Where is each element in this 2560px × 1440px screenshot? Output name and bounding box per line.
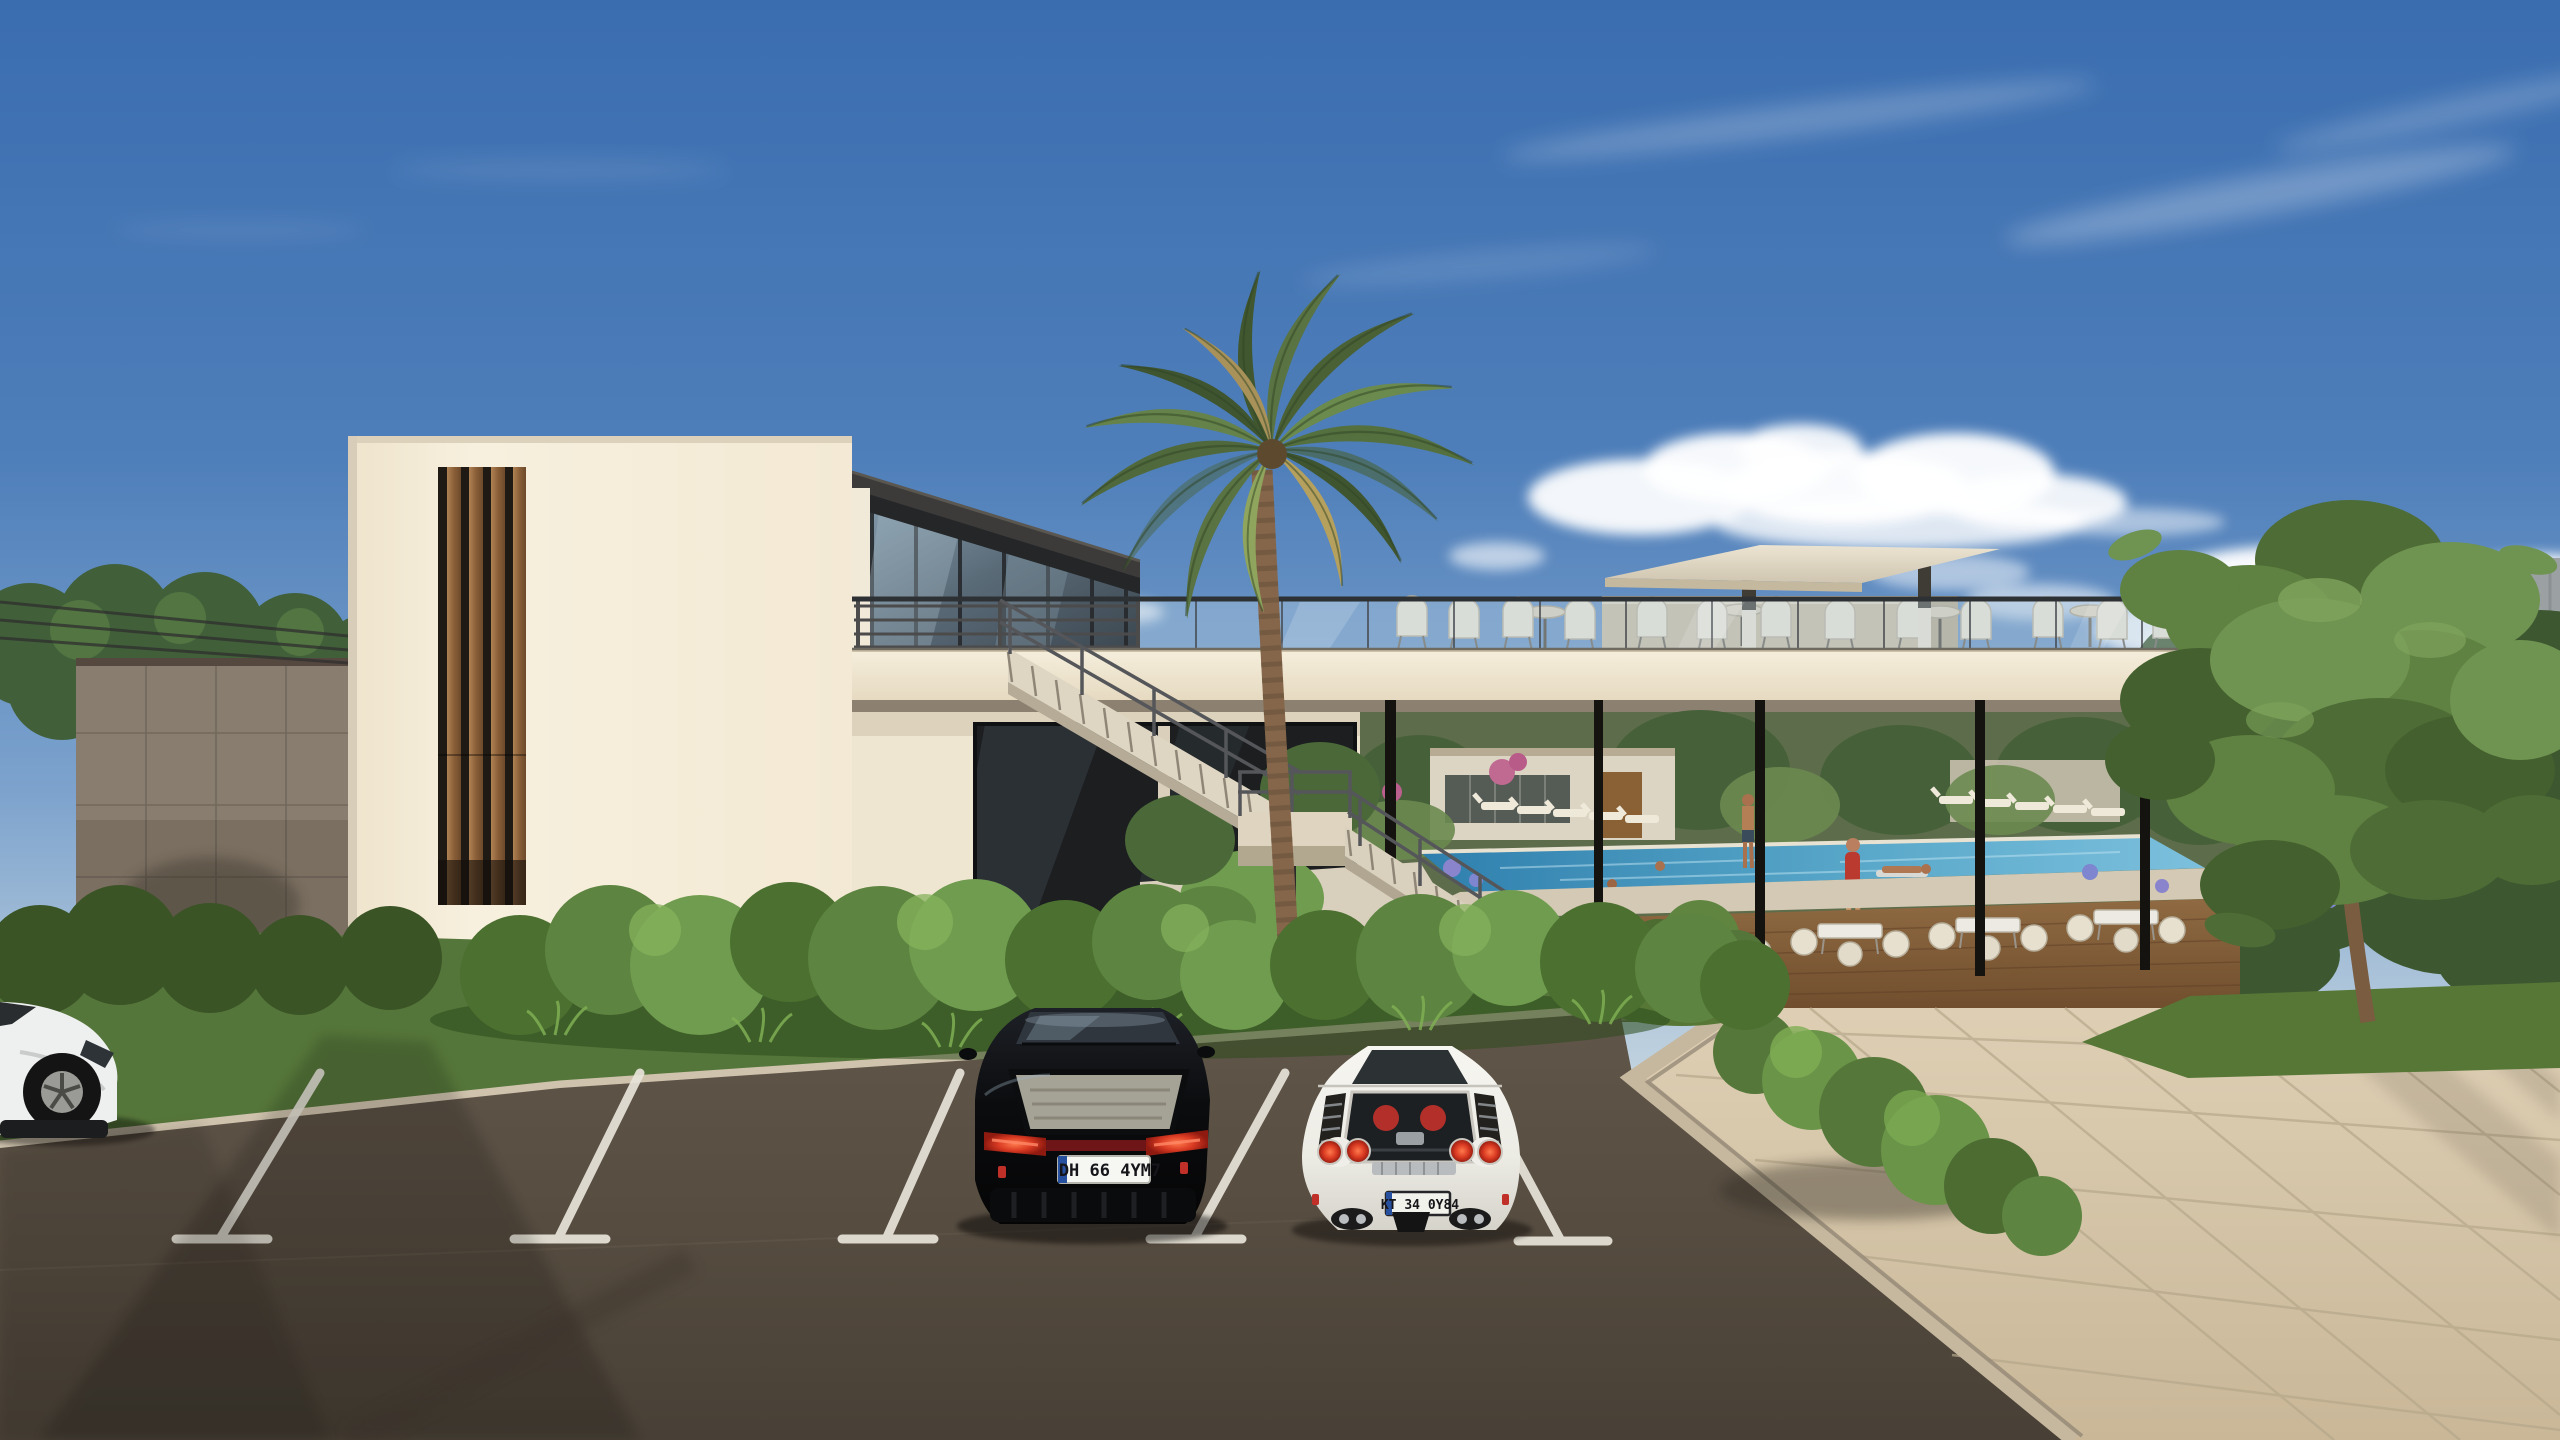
left-facade-block [348, 436, 852, 940]
amber-door [1598, 772, 1642, 838]
suv-license-plate: DH 66 4YM7 [1058, 1156, 1161, 1183]
black-suv: DH 66 4YM7 [957, 1008, 1227, 1244]
architectural-render: DH 66 4YM7 [0, 0, 2560, 1440]
sports-car-license-plate: KT 34 0Y84 [1381, 1192, 1459, 1215]
sports-car-plate-text: KT 34 0Y84 [1381, 1198, 1459, 1213]
suv-rear-window [1012, 1072, 1186, 1132]
scene-illustration: DH 66 4YM7 [0, 0, 2560, 1440]
suv-plate-text: DH 66 4YM7 [1059, 1161, 1161, 1181]
wood-slat-panel [438, 467, 526, 905]
stair-landing [1238, 812, 1352, 846]
